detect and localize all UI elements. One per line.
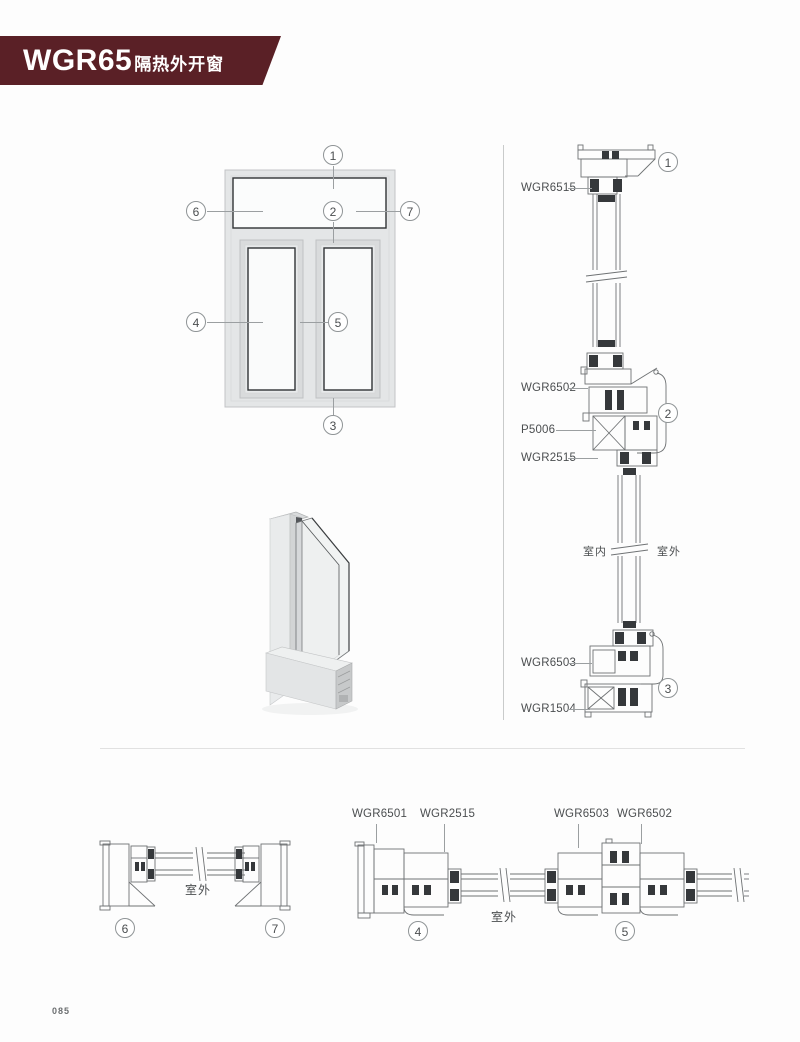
callout-circle-1: 1 (323, 145, 343, 165)
leader-line (568, 709, 590, 710)
leader-line (568, 663, 592, 664)
callout-circle-3: 3 (323, 415, 343, 435)
catalog-page: WGR65 隔热外开窗 1 2 3 4 5 6 7 (0, 0, 800, 1042)
outdoor-label: 室外 (657, 543, 681, 559)
leader-line (568, 188, 592, 189)
callout-circle-4: 4 (186, 312, 206, 332)
product-banner: WGR65 隔热外开窗 (0, 36, 281, 85)
profile-label-wgr6503: WGR6503 (554, 808, 609, 820)
leader-line (333, 222, 334, 243)
product-subtitle: 隔热外开窗 (134, 50, 224, 75)
outdoor-label: 室外 (491, 908, 517, 925)
horizontal-section-right-drawing (350, 835, 750, 920)
leader-line (207, 211, 263, 212)
indoor-label: 室内 (583, 543, 607, 559)
section-callout-7: 7 (265, 918, 285, 938)
section-callout-3: 3 (658, 678, 678, 698)
profile-label-p5006: P5006 (521, 424, 555, 436)
callout-circle-5: 5 (328, 312, 348, 332)
leader-line (376, 824, 377, 843)
leader-line (356, 211, 400, 212)
profile-3d-render (252, 505, 392, 720)
callout-circle-7: 7 (400, 201, 420, 221)
page-number: 085 (52, 1006, 70, 1016)
leader-line (641, 824, 642, 844)
leader-line (568, 388, 588, 389)
leader-line (568, 458, 598, 459)
profile-label-wgr6501: WGR6501 (352, 808, 407, 820)
leader-line (333, 166, 334, 189)
profile-label-wgr2515: WGR2515 (420, 808, 475, 820)
leader-line (556, 430, 596, 431)
section-callout-4: 4 (408, 921, 428, 941)
leader-line (300, 322, 328, 323)
section-callout-2: 2 (658, 403, 678, 423)
outdoor-label: 室外 (185, 881, 211, 898)
callout-circle-2: 2 (323, 201, 343, 221)
window-elevation-diagram (178, 138, 438, 438)
section-callout-5: 5 (615, 921, 635, 941)
section-divider (100, 748, 745, 749)
leader-line (444, 824, 445, 852)
horizontal-section-left-drawing (95, 836, 305, 916)
leader-line (333, 398, 334, 415)
profile-label-wgr6502: WGR6502 (617, 808, 672, 820)
section-callout-1: 1 (658, 152, 678, 172)
section-rule (503, 145, 504, 720)
section-callout-6: 6 (115, 918, 135, 938)
product-model: WGR65 (23, 36, 132, 85)
leader-line (578, 824, 579, 848)
leader-line (207, 322, 263, 323)
callout-circle-6: 6 (186, 201, 206, 221)
